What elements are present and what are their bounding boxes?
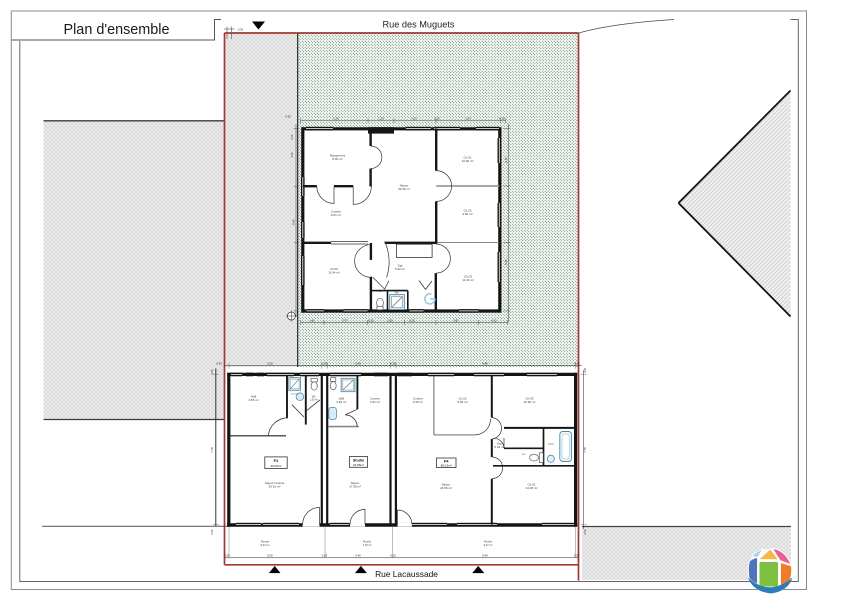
svg-text:5.00: 5.00 xyxy=(291,152,294,157)
svg-text:9.84 m²: 9.84 m² xyxy=(462,212,472,216)
svg-text:9.40: 9.40 xyxy=(482,361,488,365)
svg-text:2.70: 2.70 xyxy=(504,157,508,163)
svg-text:30.61 m²: 30.61 m² xyxy=(269,485,281,489)
svg-text:17.58 m²: 17.58 m² xyxy=(349,485,361,489)
svg-text:4.65 m²: 4.65 m² xyxy=(248,398,258,402)
svg-text:3.84 m²: 3.84 m² xyxy=(336,400,346,404)
svg-text:9.46 m²: 9.46 m² xyxy=(413,400,423,404)
svg-text:0.30: 0.30 xyxy=(216,361,222,365)
svg-text:1.20: 1.20 xyxy=(378,117,384,121)
svg-text:86,13m²: 86,13m² xyxy=(441,464,452,468)
svg-text:10.96 m²: 10.96 m² xyxy=(524,400,536,404)
svg-text:Studio: Studio xyxy=(353,458,365,462)
svg-text:0.25: 0.25 xyxy=(409,318,415,322)
svg-text:2.30: 2.30 xyxy=(387,318,393,322)
svg-text:0.30: 0.30 xyxy=(211,369,214,374)
svg-text:0.25: 0.25 xyxy=(584,529,587,534)
svg-text:1.30 m²: 1.30 m² xyxy=(310,398,318,401)
svg-text:5.04 m²: 5.04 m² xyxy=(261,543,270,547)
svg-text:0.25: 0.25 xyxy=(499,117,505,121)
svg-text:Plan d'ensemble: Plan d'ensemble xyxy=(64,22,170,38)
svg-text:0.25: 0.25 xyxy=(390,553,396,557)
svg-text:0.30: 0.30 xyxy=(238,28,244,32)
svg-text:8.40: 8.40 xyxy=(291,219,295,225)
svg-text:3.77: 3.77 xyxy=(342,318,348,322)
svg-text:9.07 m²: 9.07 m² xyxy=(484,543,493,547)
svg-text:7.78: 7.78 xyxy=(583,447,587,453)
svg-text:7.78: 7.78 xyxy=(210,447,214,453)
svg-text:11.34 m²: 11.34 m² xyxy=(462,278,474,282)
svg-text:0.30: 0.30 xyxy=(584,368,587,373)
svg-text:3.40: 3.40 xyxy=(355,361,361,365)
svg-text:Baign.: Baign. xyxy=(548,444,555,446)
svg-text:5.32 m²: 5.32 m² xyxy=(494,445,504,449)
svg-text:4.20: 4.20 xyxy=(285,115,291,119)
svg-text:0.25: 0.25 xyxy=(291,134,294,139)
svg-text:3.97: 3.97 xyxy=(453,318,459,322)
svg-text:3.40: 3.40 xyxy=(355,553,361,557)
svg-text:3.91 m²: 3.91 m² xyxy=(370,400,380,404)
svg-text:5.32 m²: 5.32 m² xyxy=(395,267,405,271)
svg-text:3.97: 3.97 xyxy=(465,117,471,121)
svg-text:3.05: 3.05 xyxy=(411,117,417,121)
svg-text:0.25: 0.25 xyxy=(434,117,440,121)
svg-text:4.32: 4.32 xyxy=(491,318,497,322)
svg-text:F2: F2 xyxy=(274,458,279,463)
svg-text:WC: WC xyxy=(522,454,526,456)
svg-text:9.01 m²: 9.01 m² xyxy=(331,213,341,217)
svg-text:Douche: Douche xyxy=(291,394,299,396)
svg-text:5.00: 5.00 xyxy=(267,361,273,365)
svg-text:0.25: 0.25 xyxy=(368,318,374,322)
svg-text:0.25: 0.25 xyxy=(322,553,328,557)
svg-text:11.94 m²: 11.94 m² xyxy=(328,271,340,275)
svg-text:9.40: 9.40 xyxy=(482,553,488,557)
svg-text:40,06m²: 40,06m² xyxy=(270,464,281,468)
svg-text:24.56 m²: 24.56 m² xyxy=(440,486,452,490)
svg-text:7.25 m²: 7.25 m² xyxy=(363,543,372,547)
svg-text:0.25: 0.25 xyxy=(322,361,328,365)
svg-text:0.25: 0.25 xyxy=(574,361,580,365)
svg-text:Rue des Muguets: Rue des Muguets xyxy=(382,20,454,30)
svg-text:14.36 m²: 14.36 m² xyxy=(526,486,538,490)
svg-text:5.00: 5.00 xyxy=(267,553,273,557)
svg-text:5.45: 5.45 xyxy=(504,259,508,265)
svg-text:Rue Lacaussade: Rue Lacaussade xyxy=(375,569,438,579)
svg-text:0.25: 0.25 xyxy=(574,553,580,557)
svg-text:22,86m²: 22,86m² xyxy=(353,463,364,467)
svg-text:1.42: 1.42 xyxy=(309,318,315,322)
svg-text:WC: WC xyxy=(378,291,382,293)
svg-text:8.96 m²: 8.96 m² xyxy=(457,400,467,404)
svg-text:12.06 m²: 12.06 m² xyxy=(462,159,474,163)
svg-text:32.56 m²: 32.56 m² xyxy=(398,187,410,191)
svg-text:0.25: 0.25 xyxy=(211,529,214,534)
svg-text:0.25: 0.25 xyxy=(390,361,396,365)
svg-text:Sdb: Sdb xyxy=(394,291,399,294)
svg-text:0.25: 0.25 xyxy=(224,553,230,557)
svg-text:8.06 m²: 8.06 m² xyxy=(332,157,342,161)
svg-text:5.20: 5.20 xyxy=(333,117,339,121)
